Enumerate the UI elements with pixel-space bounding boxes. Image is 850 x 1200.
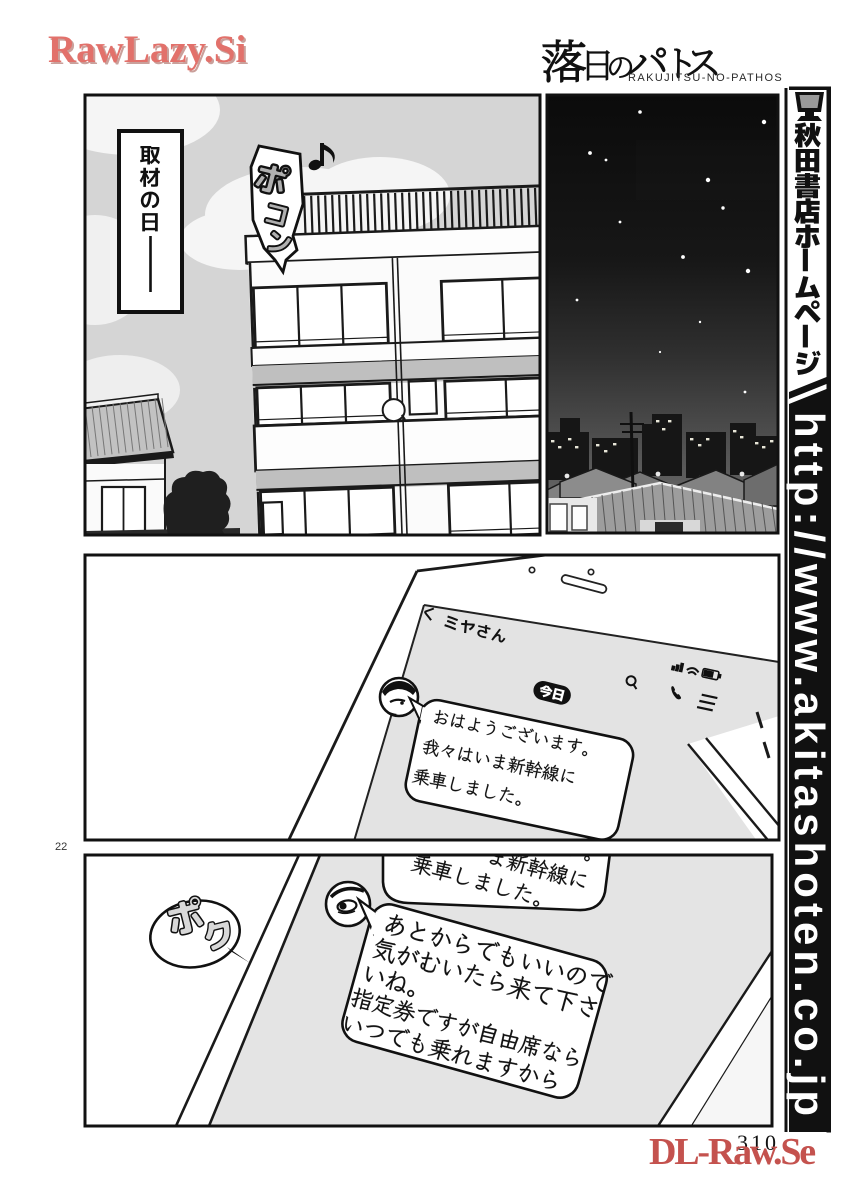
svg-text:DL-Raw.Se: DL-Raw.Se <box>649 1131 815 1173</box>
svg-text:22: 22 <box>55 841 67 853</box>
svg-text:RawLazy.Si: RawLazy.Si <box>48 28 246 71</box>
svg-text:RAKUJITSU-NO-PATHOS: RAKUJITSU-NO-PATHOS <box>628 72 783 84</box>
